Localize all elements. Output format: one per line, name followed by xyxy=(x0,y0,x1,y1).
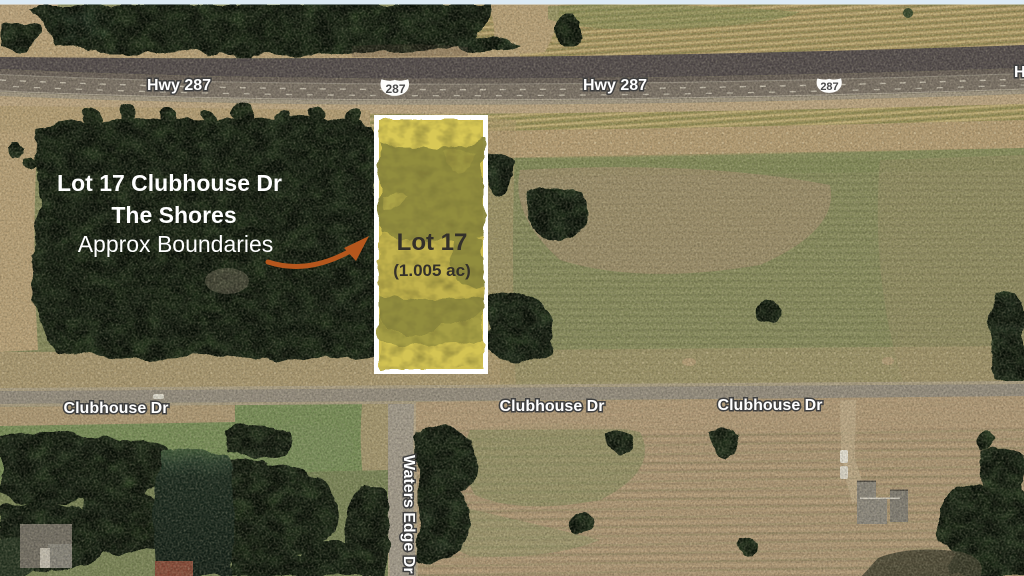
svg-text:Clubhouse Dr: Clubhouse Dr xyxy=(500,398,605,415)
svg-text:Waters Edge Dr: Waters Edge Dr xyxy=(400,455,417,574)
svg-text:Hwy 287: Hwy 287 xyxy=(583,77,647,94)
svg-text:Lot 17 Clubhouse Dr: Lot 17 Clubhouse Dr xyxy=(57,170,282,196)
svg-text:Approx Boundaries: Approx Boundaries xyxy=(78,231,274,257)
svg-text:Lot 17: Lot 17 xyxy=(397,229,468,256)
svg-text:Clubhouse Dr: Clubhouse Dr xyxy=(718,397,823,414)
svg-text:Hwy 287: Hwy 287 xyxy=(147,77,211,94)
svg-text:287: 287 xyxy=(385,82,405,96)
svg-text:287: 287 xyxy=(820,81,838,93)
svg-text:Hwy: Hwy xyxy=(1014,64,1024,81)
svg-text:Clubhouse Dr: Clubhouse Dr xyxy=(64,400,169,417)
svg-text:(1.005 ac): (1.005 ac) xyxy=(393,261,471,280)
svg-text:The Shores: The Shores xyxy=(111,202,236,228)
